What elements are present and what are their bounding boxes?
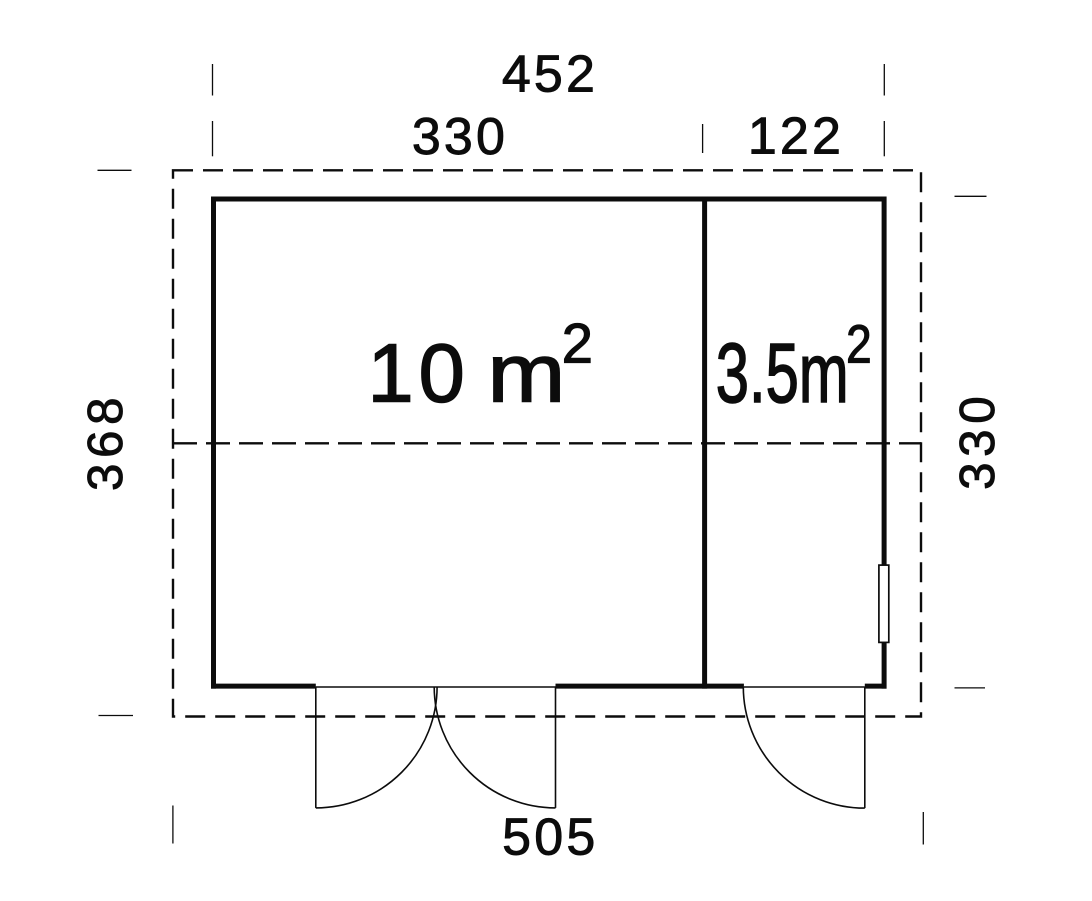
- svg-text:m: m: [488, 326, 566, 419]
- svg-text:368: 368: [78, 392, 133, 491]
- svg-text:2: 2: [846, 314, 872, 374]
- svg-text:10: 10: [368, 327, 470, 420]
- svg-text:122: 122: [748, 108, 844, 166]
- svg-text:452: 452: [502, 46, 598, 104]
- svg-text:3.5m: 3.5m: [716, 326, 849, 421]
- svg-text:505: 505: [502, 808, 598, 866]
- svg-text:330: 330: [950, 391, 1005, 490]
- svg-text:330: 330: [412, 108, 508, 166]
- svg-text:2: 2: [562, 312, 593, 375]
